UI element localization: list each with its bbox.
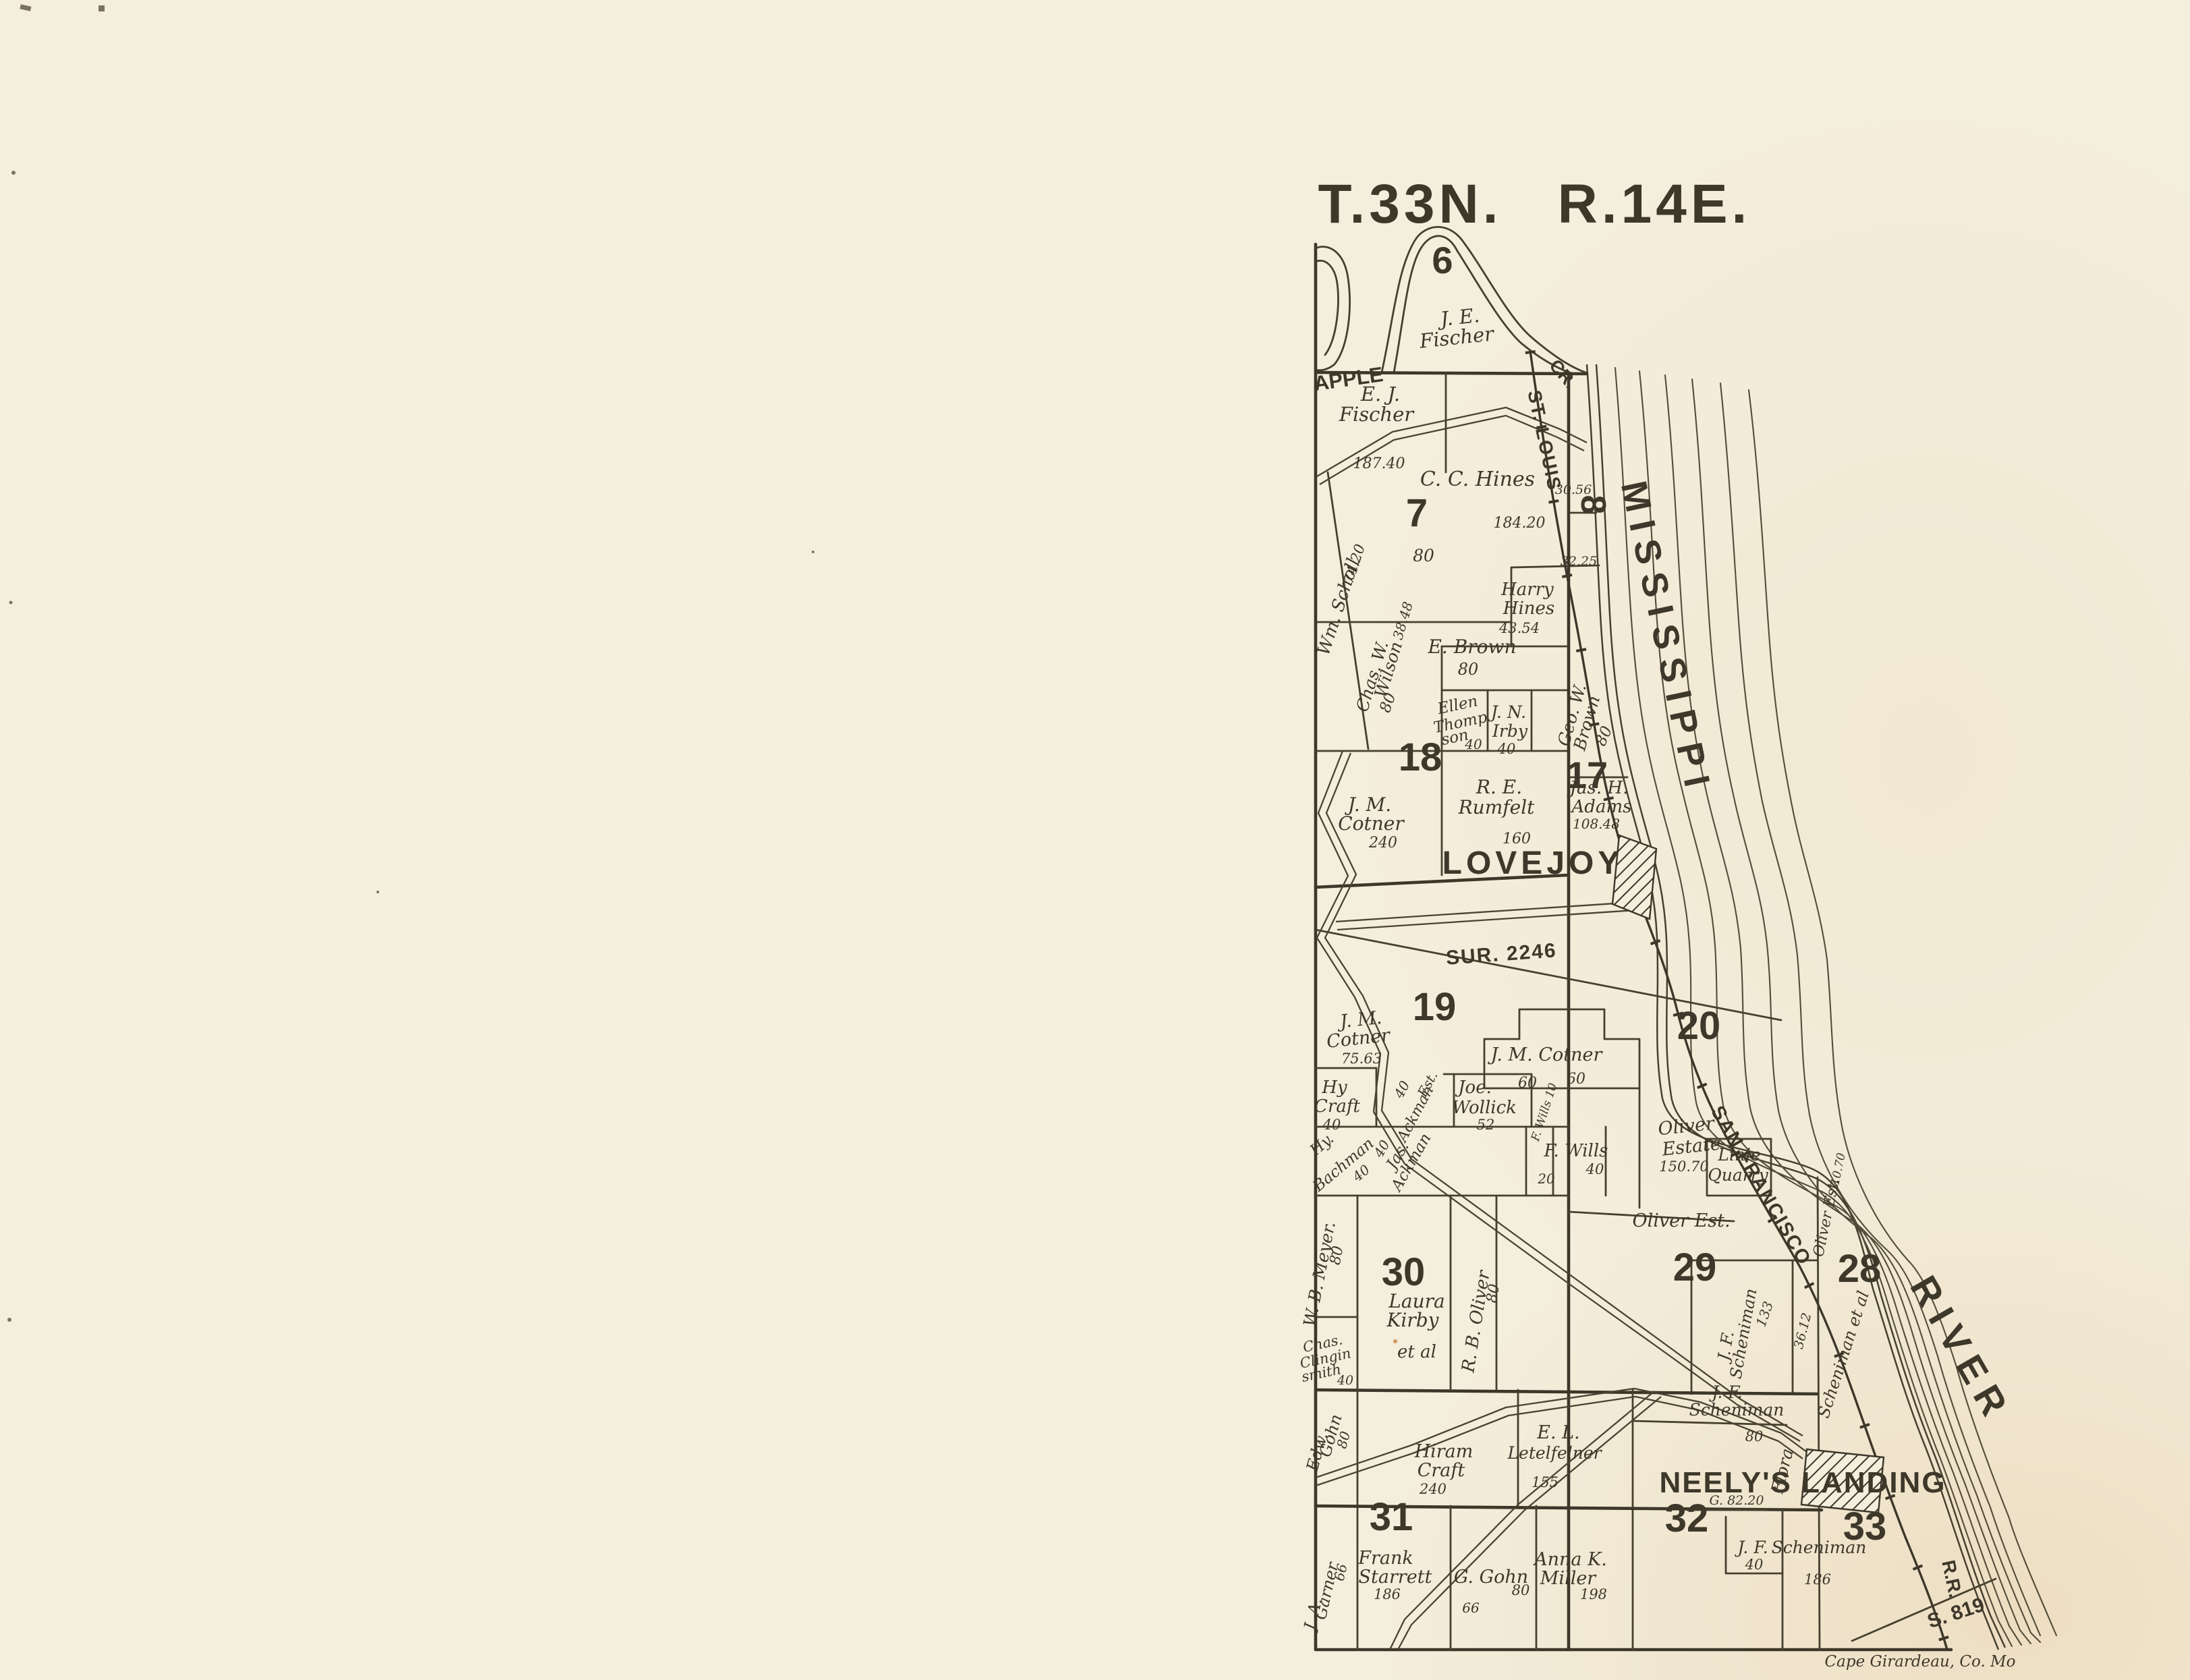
- acreage: 80: [1484, 1283, 1503, 1304]
- acreage: 186: [1804, 1571, 1831, 1588]
- owner-ej-fischer: Fischer: [1339, 403, 1415, 426]
- acreage: 40: [1745, 1557, 1764, 1573]
- acreage: 80: [1512, 1582, 1530, 1598]
- acreage: 75.63: [1341, 1051, 1382, 1067]
- acreage: 30.56: [1555, 482, 1592, 497]
- owner-jm-cotner-20: J. M. Cotner: [1488, 1044, 1604, 1065]
- owner-laura-kirby: Kirby: [1386, 1309, 1440, 1331]
- section-32: 32: [1665, 1496, 1709, 1540]
- acreage: 240: [1368, 835, 1397, 851]
- acreage: 184.20: [1494, 515, 1546, 532]
- owner-jf-scheniman-32: J. F.: [1708, 1382, 1742, 1402]
- owner-laura-kirby: et al: [1397, 1342, 1436, 1362]
- owner-jf-scheniman-32: Scheniman: [1689, 1400, 1785, 1420]
- acreage: 32.25: [1561, 554, 1597, 569]
- section-29: 29: [1673, 1245, 1717, 1289]
- acreage: 40: [1464, 736, 1482, 752]
- owner-harry-hines: Harry: [1500, 580, 1554, 600]
- acreage: 60: [1567, 1071, 1585, 1088]
- owner-jf-scheniman-33: Scheniman: [1772, 1538, 1867, 1557]
- acreage: 108.48: [1573, 816, 1620, 832]
- plat-map-page: T.33N. R.14E. 6 7 8 18 17 19 20 30 29 28…: [0, 0, 2190, 1680]
- owner-frank-starrett: Starrett: [1359, 1567, 1432, 1588]
- acreage: G. 82.20: [1710, 1493, 1764, 1508]
- water-line: [1692, 379, 2040, 1642]
- survey-grid-lines: [1316, 227, 1996, 1650]
- acreage: 10.70: [1828, 1152, 1849, 1187]
- acreage: 43.54: [1498, 620, 1540, 636]
- owner-f-wills: F. Wills: [1543, 1141, 1608, 1161]
- acreage: 150.70: [1659, 1158, 1708, 1175]
- owner-linie-quarry: Linie: [1717, 1145, 1761, 1165]
- apple-creek-cr-label: CR.: [1545, 356, 1581, 393]
- s819-label: S. 819: [1925, 1594, 1988, 1633]
- acreage: 80: [1458, 660, 1479, 679]
- owner-anna-miller: Anna K.: [1532, 1549, 1607, 1570]
- acreage: 40: [1497, 741, 1516, 757]
- neelys-landing-label: NEELY'S LANDING: [1659, 1466, 1946, 1499]
- owner-hy-bachman: Hy.: [1306, 1130, 1337, 1160]
- section-28: 28: [1838, 1247, 1882, 1291]
- roads: [1316, 408, 1807, 1650]
- owner-je-fischer: Fischer: [1417, 322, 1496, 353]
- owner-cc-hines: C. C. Hines: [1420, 468, 1535, 491]
- owner-oliver-est-29: Oliver Est.: [1632, 1210, 1730, 1231]
- owner-letelfelner: Letelfelner: [1507, 1443, 1602, 1463]
- acreage: 52: [1477, 1117, 1495, 1133]
- owner-jf-scheniman-33: J. F.: [1734, 1538, 1768, 1557]
- owner-joe-wollick: Wollick: [1452, 1098, 1517, 1118]
- section-30: 30: [1382, 1250, 1426, 1294]
- acreage: 36.12: [1791, 1311, 1815, 1350]
- acreage: 40: [1585, 1161, 1604, 1177]
- range-title: R.14E.: [1558, 173, 1751, 235]
- water-line: [1720, 383, 2040, 1635]
- acreage: 60: [1518, 1075, 1537, 1092]
- owner-hy-craft: Hy: [1321, 1077, 1347, 1098]
- rr-label: R.R.: [1938, 1558, 1966, 1599]
- section-8: 8: [1573, 495, 1612, 515]
- lovejoy-label: LOVEJOY: [1442, 845, 1624, 881]
- acreage: 160: [1503, 831, 1531, 847]
- acreage: 155: [1532, 1474, 1559, 1490]
- section-18: 18: [1399, 735, 1442, 779]
- owner-jm-cotner-19: Cotner: [1326, 1025, 1393, 1053]
- owner-jn-irby: J. N.: [1488, 702, 1526, 722]
- acreage: 20: [1537, 1171, 1555, 1187]
- owner-hiram-craft: Craft: [1417, 1460, 1465, 1481]
- owner-scheniman-etal: Scheniman et al: [1814, 1289, 1873, 1420]
- owner-re-rumfelt: R. E.: [1476, 776, 1522, 798]
- owner-jm-cotner-18: Cotner: [1338, 812, 1405, 835]
- section-6: 6: [1432, 239, 1453, 281]
- owner-hy-craft: Craft: [1314, 1096, 1360, 1117]
- section-20: 20: [1677, 1004, 1721, 1048]
- acreage: 66: [1462, 1600, 1480, 1616]
- township-title: T.33N.: [1318, 173, 1503, 235]
- owner-joe-wollick: Joe.: [1455, 1077, 1492, 1098]
- acreage: 40: [1337, 1373, 1353, 1388]
- owner-ej-fischer: E. J.: [1360, 383, 1400, 405]
- acreage: 80: [1745, 1428, 1764, 1445]
- acreage: 240: [1419, 1481, 1447, 1497]
- acreage: 40: [1391, 1078, 1413, 1102]
- owner-jas-adams: Adams: [1571, 797, 1632, 817]
- acreage: 66: [1331, 1562, 1351, 1582]
- owner-harry-hines: Hines: [1503, 598, 1554, 619]
- sur-2246-label: SUR. 2246: [1445, 939, 1558, 969]
- section-31: 31: [1370, 1495, 1413, 1539]
- map-credit: Cape Girardeau, Co. Mo: [1825, 1653, 2016, 1671]
- owner-hiram-craft: Hiram: [1414, 1441, 1473, 1462]
- river-label: RIVER: [1902, 1268, 2020, 1430]
- water-line: [1749, 390, 2056, 1635]
- owner-jn-irby: Irby: [1492, 721, 1528, 741]
- section-7: 7: [1406, 491, 1428, 535]
- owner-frank-starrett: Frank: [1357, 1548, 1413, 1569]
- acreage: 80: [1327, 1245, 1347, 1266]
- acreage: 38.48: [1389, 600, 1416, 642]
- owner-jas-adams: Jas. H.: [1567, 778, 1629, 798]
- paper-specks: [7, 4, 1397, 1343]
- owner-re-rumfelt: Rumfelt: [1458, 796, 1536, 818]
- acreage: 187.40: [1353, 455, 1405, 472]
- section-19: 19: [1413, 985, 1457, 1029]
- owner-wb-meyer: W. B. Meyer.: [1299, 1220, 1339, 1328]
- acreage: 186: [1374, 1586, 1401, 1602]
- owner-letelfelner: E. L.: [1536, 1422, 1579, 1443]
- plat-map: T.33N. R.14E. 6 7 8 18 17 19 20 30 29 28…: [0, 0, 2190, 1680]
- acreage: 80: [1413, 546, 1434, 565]
- owner-e-brown: E. Brown: [1427, 636, 1516, 658]
- acreage: 198: [1580, 1586, 1607, 1602]
- owner-linie-quarry: Quarry: [1708, 1165, 1768, 1185]
